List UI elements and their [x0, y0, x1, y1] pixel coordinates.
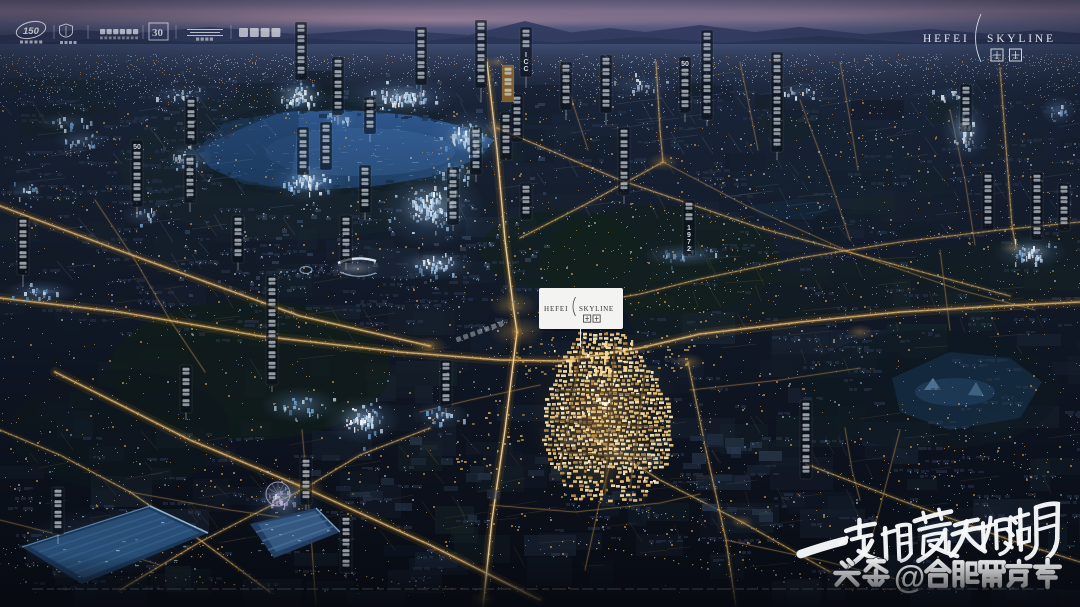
svg-text:150: 150 — [23, 26, 40, 37]
svg-text:2: 2 — [687, 246, 691, 253]
svg-text:7: 7 — [687, 239, 691, 246]
svg-text:C: C — [523, 66, 528, 73]
svg-text:SKYLINE: SKYLINE — [987, 33, 1056, 45]
svg-text:9: 9 — [687, 232, 691, 239]
svg-text:I: I — [525, 52, 527, 59]
svg-text:50: 50 — [133, 144, 141, 151]
svg-text:HEFEI: HEFEI — [923, 33, 970, 45]
svg-text:50: 50 — [681, 61, 689, 68]
svg-text:30: 30 — [152, 27, 164, 39]
svg-text:HEFEI: HEFEI — [544, 305, 568, 313]
svg-text:1: 1 — [687, 225, 691, 232]
svg-text:SKYLINE: SKYLINE — [579, 305, 614, 313]
svg-text:C: C — [523, 59, 528, 66]
